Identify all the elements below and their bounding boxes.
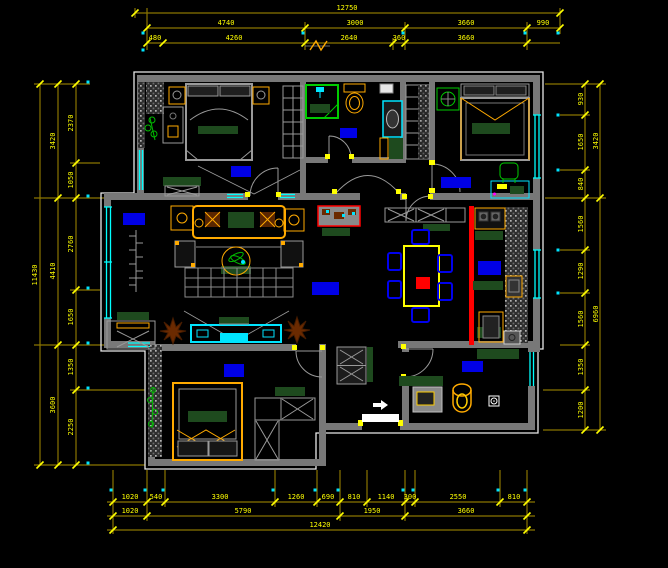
dim-text: 1140 [378, 493, 395, 501]
dim-text: 12750 [336, 4, 357, 12]
living-wall-shelf[interactable] [129, 230, 143, 292]
bath2-counter [399, 376, 443, 386]
washing-machine[interactable] [504, 331, 520, 344]
floor-plan-drawing: 12750 4740 3000 3660 990 480 4260 2640 3… [0, 0, 668, 568]
bedroom1-dresser[interactable] [163, 107, 183, 143]
window-kitchen-right [533, 250, 541, 298]
dim-text: 2250 [67, 419, 75, 436]
break-mark-icon [305, 41, 330, 50]
dim-text: 540 [150, 493, 163, 501]
bedroom2-chair[interactable] [500, 163, 518, 183]
dim-text: 1950 [364, 507, 381, 515]
dim-text: 840 [577, 178, 585, 191]
dim-text: 810 [348, 493, 361, 501]
dim-text: 1650 [67, 309, 75, 326]
dim-text: 810 [508, 493, 521, 501]
bedroom1-bed[interactable] [186, 84, 252, 160]
dining-chairs[interactable] [388, 230, 452, 322]
dim-text: 4410 [49, 263, 57, 280]
bath2-shelf [477, 349, 519, 359]
shoe-cabinet[interactable] [337, 347, 373, 384]
bedroom1-label-block[interactable] [231, 166, 251, 177]
hall-console[interactable] [318, 206, 360, 236]
bath1-cabinet[interactable] [380, 138, 403, 159]
dining-table[interactable] [404, 246, 439, 306]
living-sofa[interactable] [193, 206, 285, 247]
dim-text: 3000 [347, 19, 364, 27]
kitchen-sliding-door[interactable] [469, 206, 474, 345]
dim-text: 2760 [67, 236, 75, 253]
dim-text: 1260 [288, 493, 305, 501]
living-coffee-table[interactable] [221, 247, 251, 275]
hall-closet[interactable] [406, 85, 429, 159]
door-bedroom1 [250, 168, 278, 196]
dim-text: 930 [577, 93, 585, 106]
living-label-block[interactable] [123, 213, 145, 225]
dim-text: 4260 [226, 34, 243, 42]
dim-text: 2640 [341, 34, 358, 42]
dim-text: 3660 [458, 34, 475, 42]
window-bedroom2-right [533, 115, 541, 178]
bath2-label-block[interactable] [462, 361, 483, 372]
dim-text: 1050 [67, 172, 75, 189]
door-bath1 [329, 136, 351, 158]
entry-threshold [362, 414, 399, 422]
window-living-left [104, 207, 112, 318]
dim-text: 11430 [31, 264, 39, 285]
living-armchair-right[interactable] [284, 209, 304, 231]
entry-arrow-icon [373, 400, 388, 410]
living-tv-cabinet[interactable] [191, 317, 281, 342]
ceiling-fan-icon[interactable] [437, 88, 459, 110]
dim-text: 1020 [122, 507, 139, 515]
kitchen-stove[interactable] [475, 208, 505, 229]
dining-sideboard[interactable] [385, 208, 465, 231]
dim-text: 1350 [577, 359, 585, 376]
living-plant-right[interactable] [284, 317, 310, 343]
dim-text: 1560 [577, 216, 585, 233]
dim-text: 3300 [212, 493, 229, 501]
dim-text: 1560 [577, 311, 585, 328]
dim-text: 3420 [49, 133, 57, 150]
bath2-toilet[interactable] [453, 384, 471, 412]
bedroom2-label-block[interactable] [441, 177, 471, 188]
bedroom3-bed[interactable] [173, 383, 242, 460]
dim-text: 690 [322, 493, 335, 501]
bath1-shower[interactable] [306, 85, 338, 118]
kitchen-fridge[interactable] [479, 312, 503, 342]
window-bath2-right [530, 352, 534, 386]
dim-text: 2370 [67, 115, 75, 132]
bedroom3-wardrobe[interactable] [255, 387, 315, 460]
door-hall-arc [336, 176, 399, 194]
door-bath2 [405, 349, 433, 377]
bath1-vanity[interactable] [383, 101, 402, 137]
dim-text: 480 [149, 34, 162, 42]
dim-text: 5790 [235, 507, 252, 515]
bedroom3-label-block[interactable] [224, 364, 244, 377]
living-end-table-left[interactable] [175, 241, 195, 267]
bath2-vanity[interactable] [413, 387, 442, 412]
dim-text: 1290 [577, 263, 585, 280]
dim-text: 1650 [577, 134, 585, 151]
kitchen-sink[interactable] [506, 276, 522, 297]
dim-text: 990 [537, 19, 550, 27]
bedroom2-bed[interactable] [461, 84, 529, 160]
dim-text: 2550 [450, 493, 467, 501]
bedroom1-nightstand-left[interactable] [169, 87, 185, 104]
living-label-block-2[interactable] [312, 282, 339, 295]
cad-canvas[interactable]: 12750 4740 3000 3660 990 480 4260 2640 3… [0, 0, 668, 568]
dim-text: 3660 [458, 19, 475, 27]
bath1-mirror[interactable] [380, 84, 393, 93]
living-end-table-right[interactable] [281, 241, 303, 267]
dim-text: 1350 [67, 359, 75, 376]
dim-text: 360 [393, 34, 406, 42]
bath1-label-block[interactable] [340, 128, 357, 138]
dim-text: 6960 [592, 306, 600, 323]
dim-text: 3660 [458, 507, 475, 515]
dim-text: 12420 [309, 521, 330, 529]
floor-drain-icon [489, 396, 499, 406]
living-plant-left[interactable] [160, 318, 186, 344]
bedroom1-nightstand-right[interactable] [253, 87, 269, 104]
kitchen-label-block[interactable] [478, 261, 501, 275]
dim-text: 3420 [592, 133, 600, 150]
dim-text: 4740 [218, 19, 235, 27]
dim-text: 1200 [577, 402, 585, 419]
living-armchair-left[interactable] [171, 206, 193, 230]
dim-text: 1020 [122, 493, 139, 501]
dim-text: 300 [404, 493, 417, 501]
door-bedroom3 [296, 351, 322, 377]
bedroom1-plant[interactable] [145, 117, 157, 140]
dim-text: 3600 [49, 397, 57, 414]
bath1-toilet[interactable] [344, 84, 365, 113]
